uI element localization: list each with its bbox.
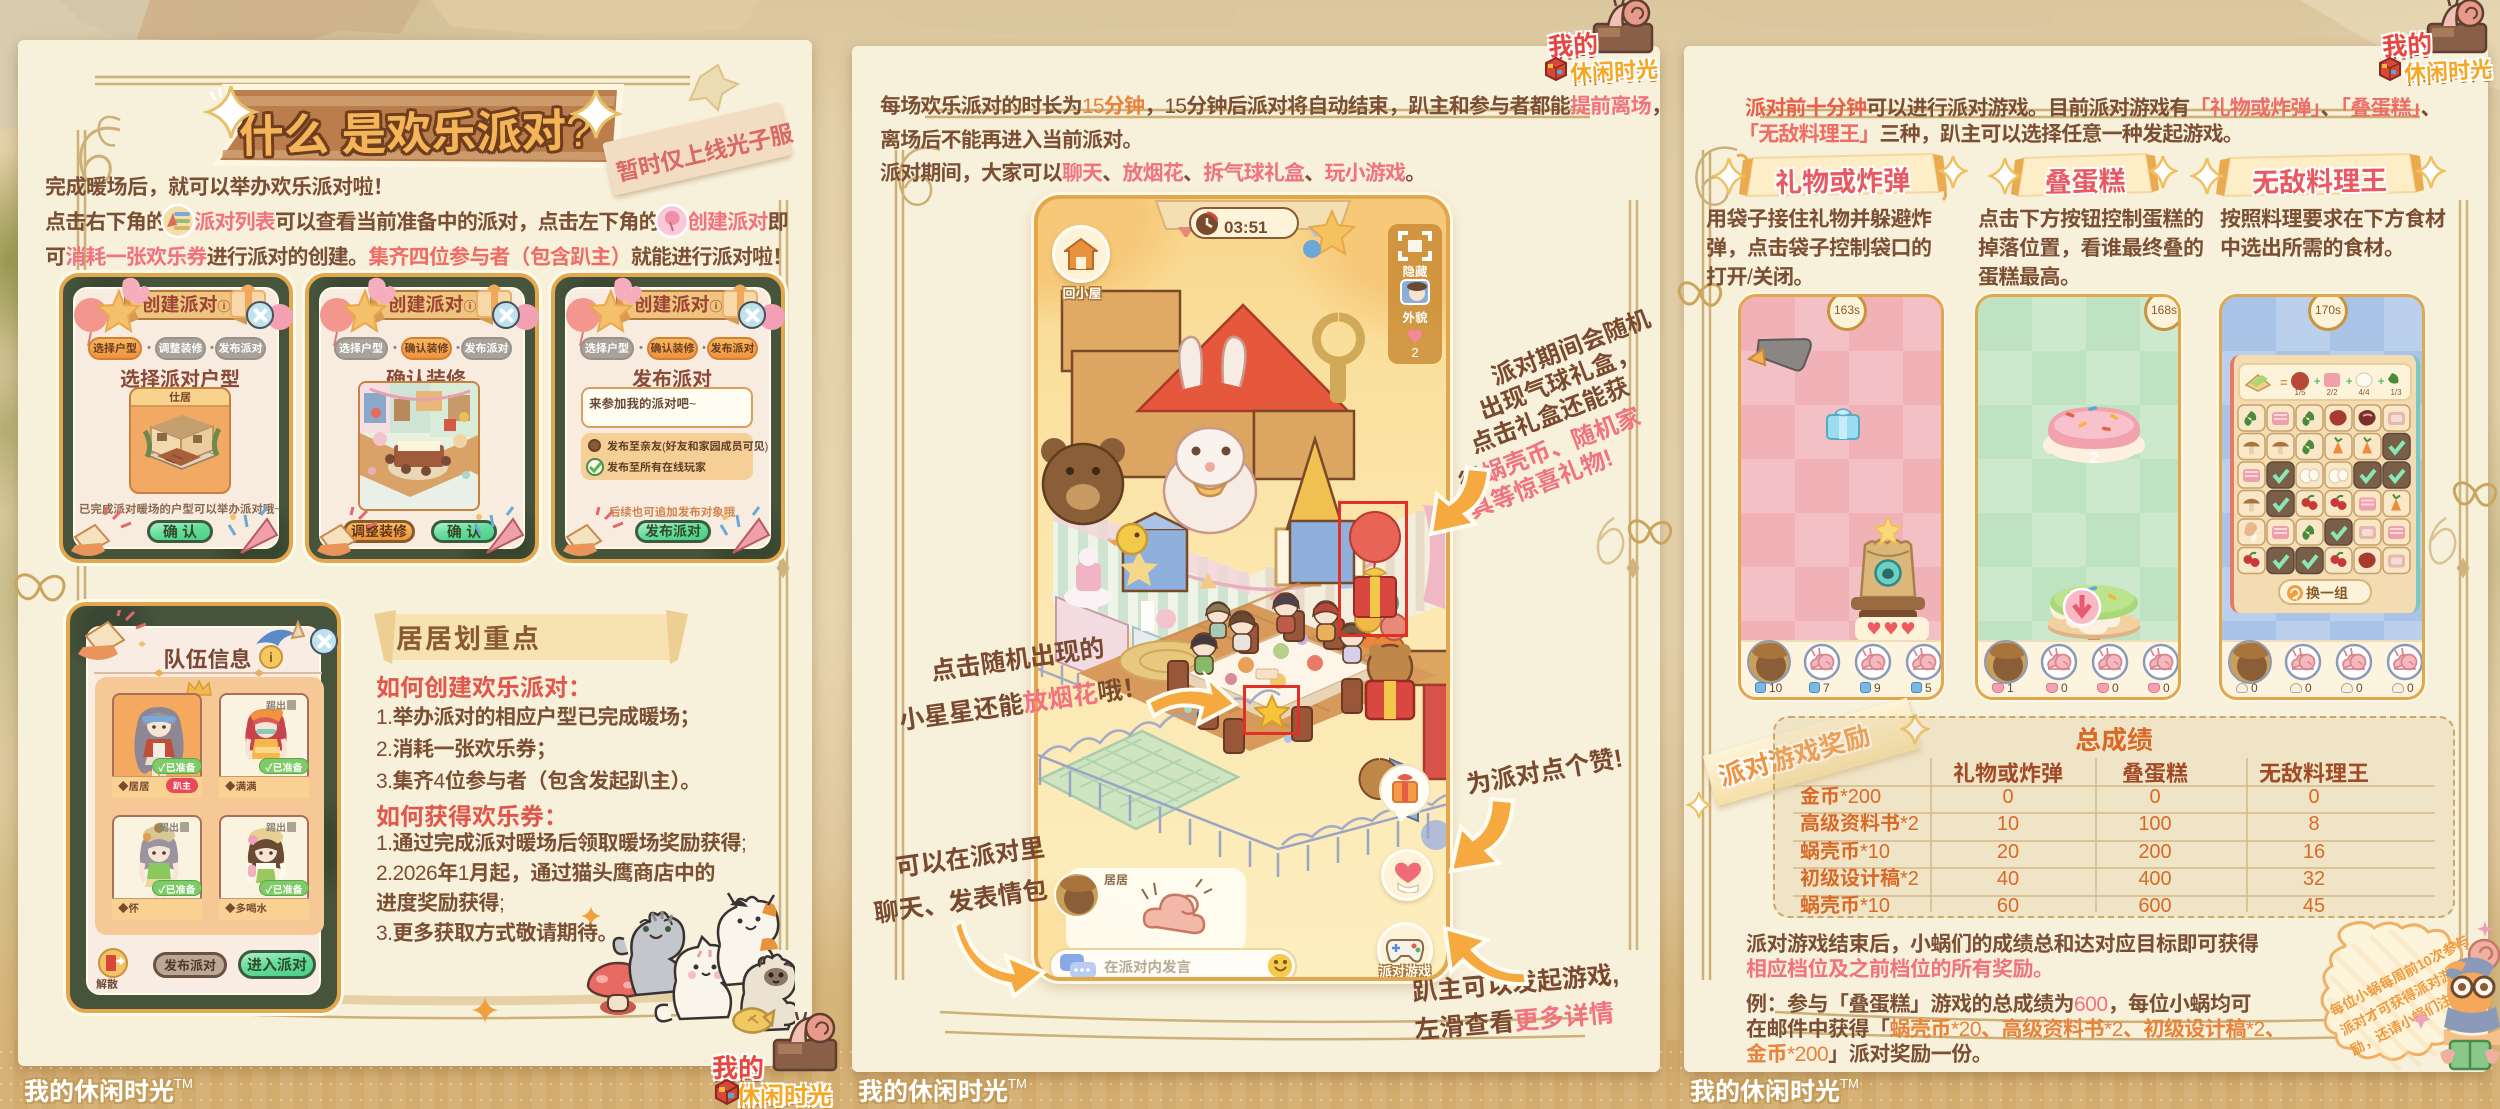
svg-text:2: 2 [2090, 444, 2099, 468]
